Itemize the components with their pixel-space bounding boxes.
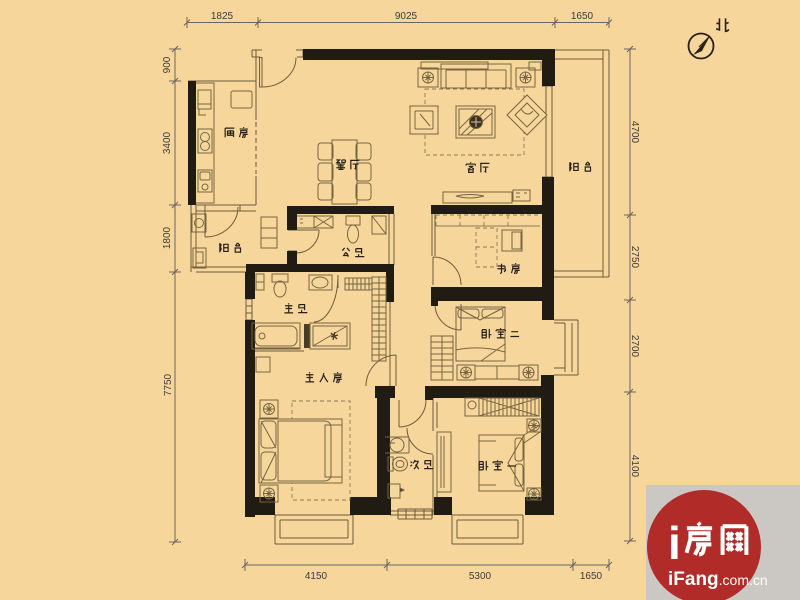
svg-text:2700: 2700 (629, 335, 640, 358)
svg-text:4150: 4150 (305, 571, 328, 582)
svg-text:9025: 9025 (395, 11, 418, 22)
svg-text:iFang.com.cn: iFang.com.cn (668, 569, 768, 590)
svg-text:1825: 1825 (211, 11, 234, 22)
svg-text:4100: 4100 (629, 455, 640, 478)
svg-text:2750: 2750 (629, 246, 640, 269)
svg-text:1650: 1650 (580, 571, 603, 582)
svg-text:3400: 3400 (162, 131, 173, 154)
svg-text:900: 900 (162, 56, 173, 73)
svg-text:1800: 1800 (162, 226, 173, 249)
svg-text:7750: 7750 (163, 373, 174, 396)
svg-text:5300: 5300 (469, 571, 492, 582)
svg-text:i: i (668, 517, 681, 569)
svg-text:1650: 1650 (571, 11, 594, 22)
svg-text:4700: 4700 (629, 121, 640, 144)
